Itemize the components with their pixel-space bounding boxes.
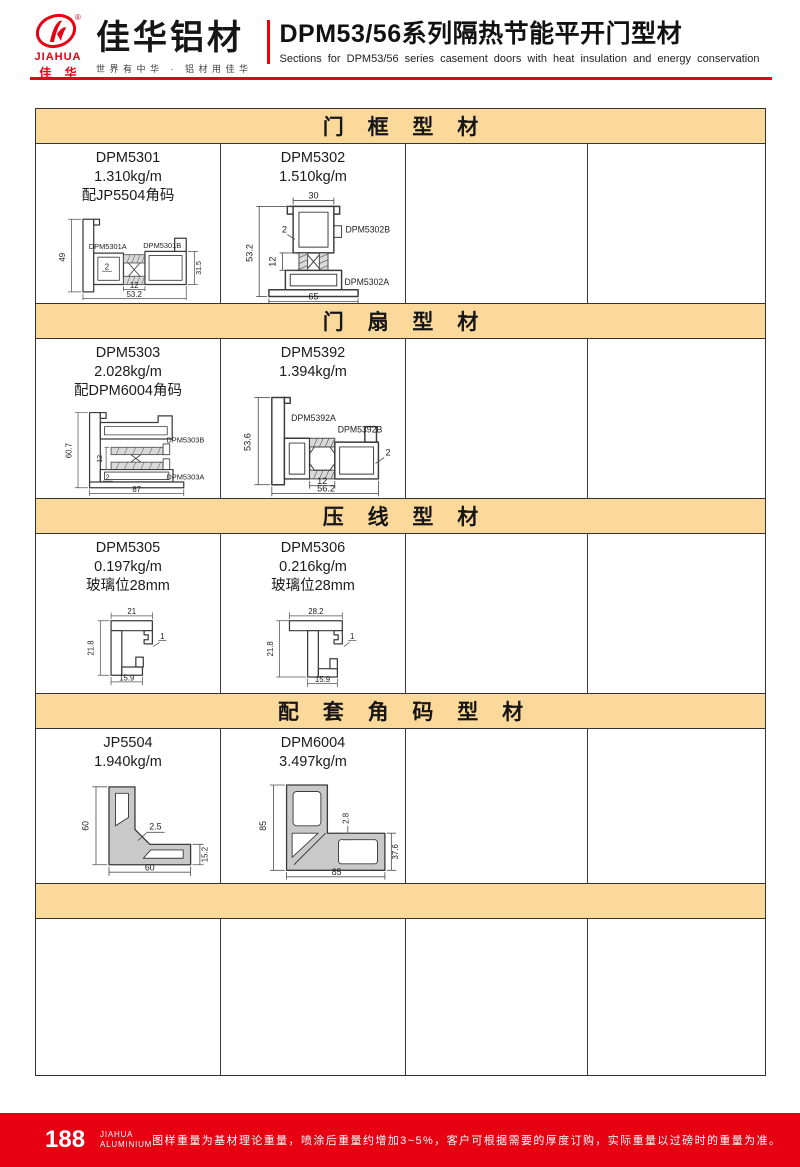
dim-height: 21.8 <box>87 639 96 655</box>
profile-weight: 3.497kg/m <box>279 753 347 772</box>
part-label: DPM5301B <box>143 241 181 250</box>
dim-wall: 1 <box>350 631 354 640</box>
profile-weight: 0.216kg/m <box>271 558 355 577</box>
dim-width: 60 <box>145 862 155 872</box>
header-rule <box>30 77 772 80</box>
profile-code: DPM5306 <box>271 539 355 558</box>
section-door-leaf: 门 扇 型 材 DPM5303 2.028kg/m 配DPM6004角码 <box>36 303 765 498</box>
section-glazing-bead: 压 线 型 材 DPM5305 0.197kg/m 玻璃位28mm <box>36 498 765 693</box>
dpm5306-drawing: 28.2 21.8 1 15.9 <box>221 596 405 693</box>
dim-break: 12 <box>97 454 104 462</box>
profile-cell-dpm5303: DPM5303 2.028kg/m 配DPM6004角码 <box>36 339 221 498</box>
profile-row: DPM5303 2.028kg/m 配DPM6004角码 <box>36 339 765 498</box>
profile-code: DPM5302 <box>279 149 347 168</box>
dim-top: 30 <box>308 190 318 200</box>
dim-height: 21.8 <box>266 640 275 656</box>
dim-wall: 2 <box>386 447 391 457</box>
dim-height: 60 <box>81 820 91 830</box>
page-subtitle: Sections for DPM53/56 series casement do… <box>280 53 760 65</box>
part-label: DPM5392B <box>338 424 383 434</box>
empty-cell <box>406 144 588 303</box>
registered-mark: ® <box>75 13 81 22</box>
section-title: 配 套 角 码 型 材 <box>269 696 532 726</box>
dim-width: 53.2 <box>127 289 142 298</box>
profile-weight: 1.394kg/m <box>279 363 347 382</box>
profile-cell-jp5504: JP5504 1.940kg/m 60 60 15.2 <box>36 729 221 883</box>
page-title: DPM53/56系列隔热节能平开门型材 <box>280 21 760 49</box>
profile-note: 配DPM6004角码 <box>74 382 182 401</box>
company-block: 佳华铝材 世界有中华 · 铝材用佳华 <box>96 12 253 75</box>
section-band: 配 套 角 码 型 材 <box>36 693 765 729</box>
dim-width: 85 <box>332 867 342 877</box>
jp5504-drawing: 60 60 15.2 2.5 <box>36 772 220 883</box>
profile-cell-dpm5301: DPM5301 1.310kg/m 配JP5504角码 <box>36 144 221 303</box>
jiahua-logo-icon: ® <box>33 12 83 50</box>
page-header: ® JIAHUA 佳 华 佳华铝材 世界有中华 · 铝材用佳华 DPM53/56… <box>30 12 772 74</box>
catalog-page: ® JIAHUA 佳 华 佳华铝材 世界有中华 · 铝材用佳华 DPM53/56… <box>0 0 800 1167</box>
dim-wall: 2.5 <box>149 821 161 831</box>
empty-cell <box>406 339 588 498</box>
empty-cell <box>406 729 588 883</box>
dim-width: 65 <box>308 291 318 301</box>
dpm5303-drawing: 60.7 12 2 87 DPM5303B DPM5303A <box>36 401 220 498</box>
dim-top: 21 <box>127 607 136 616</box>
profile-weight: 1.510kg/m <box>279 168 347 187</box>
section-corner-connector: 配 套 角 码 型 材 JP5504 1.940kg/m 60 60 <box>36 693 765 883</box>
profile-note: 玻璃位28mm <box>86 577 170 596</box>
dim-height: 49 <box>58 252 67 261</box>
profile-table: 门 框 型 材 DPM5301 1.310kg/m 配JP5504角码 <box>35 108 766 1076</box>
empty-cell <box>588 919 765 1075</box>
empty-cell <box>588 339 765 498</box>
profile-cell-dpm6004: DPM6004 3.497kg/m 85 85 37 <box>221 729 406 883</box>
empty-cell <box>588 144 765 303</box>
page-footer: 188 JIAHUA ALUMINIUM 图样重量为基材理论重量，喷涂后重量约增… <box>0 1113 800 1167</box>
dpm5301-drawing: 49 31.5 12 53.2 2 DPM5301A DPM5301B <box>36 206 220 303</box>
profile-row: DPM5301 1.310kg/m 配JP5504角码 <box>36 144 765 303</box>
empty-cell <box>406 534 588 693</box>
section-band: 门 扇 型 材 <box>36 303 765 339</box>
dim-break: 12 <box>130 280 139 289</box>
header-divider <box>267 20 270 64</box>
profile-code: DPM5305 <box>86 539 170 558</box>
dim-height: 60.7 <box>64 442 73 457</box>
dim-top: 28.2 <box>308 607 323 616</box>
profile-code: DPM5303 <box>74 344 182 363</box>
profile-weight: 0.197kg/m <box>86 558 170 577</box>
dim-width: 56.2 <box>317 483 335 493</box>
dim-wall: 1 <box>160 631 164 640</box>
section-title: 门 框 型 材 <box>314 111 488 141</box>
empty-cell <box>406 919 588 1075</box>
profile-code: DPM5392 <box>279 344 347 363</box>
section-band <box>36 883 765 919</box>
dim-height: 53.6 <box>242 433 252 451</box>
section-empty <box>36 883 765 1075</box>
dpm6004-drawing: 85 85 37.6 2.8 <box>221 772 405 883</box>
dim-right-height: 31.5 <box>196 261 203 275</box>
empty-cell <box>588 534 765 693</box>
section-title: 门 扇 型 材 <box>314 306 488 336</box>
dim-break: 12 <box>268 256 278 266</box>
dpm5302-drawing: 30 53.2 2 12 65 DPM5302B DPM5302A <box>221 187 405 303</box>
page-number: 188 <box>45 1128 85 1152</box>
dim-right-height: 37.6 <box>391 843 400 859</box>
footer-brand-line1: JIAHUA <box>100 1130 152 1140</box>
profile-row: DPM5305 0.197kg/m 玻璃位28mm 21 21.8 <box>36 534 765 693</box>
part-label: DPM5302A <box>345 277 390 287</box>
dim-wall: 2 <box>282 224 287 234</box>
profile-weight: 2.028kg/m <box>74 363 182 382</box>
section-title: 压 线 型 材 <box>314 501 488 531</box>
section-band: 压 线 型 材 <box>36 498 765 534</box>
dim-width: 87 <box>132 484 141 493</box>
profile-code: DPM6004 <box>279 734 347 753</box>
disclaimer-text: 图样重量为基材理论重量，喷涂后重量约增加3~5%，客户可根据需要的厚度订购，实际… <box>152 1132 781 1148</box>
profile-row <box>36 919 765 1075</box>
dim-height: 53.2 <box>244 244 254 262</box>
dim-width: 15.9 <box>119 673 134 682</box>
profile-note: 配JP5504角码 <box>82 187 175 206</box>
dpm5305-drawing: 21 21.8 1 15.9 <box>36 596 220 693</box>
profile-note: 玻璃位28mm <box>271 577 355 596</box>
profile-cell-dpm5306: DPM5306 0.216kg/m 玻璃位28mm 28.2 21.8 <box>221 534 406 693</box>
part-label: DPM5302B <box>345 224 390 234</box>
profile-cell-dpm5392: DPM5392 1.394kg/m <box>221 339 406 498</box>
profile-cell-dpm5302: DPM5302 1.510kg/m <box>221 144 406 303</box>
dpm5392-drawing: 53.6 12 56.2 2 DPM5392A DPM5392B <box>221 382 405 498</box>
part-label: DPM5392A <box>291 412 336 422</box>
brand-name-en: JIAHUA <box>35 51 82 63</box>
dim-height: 85 <box>258 820 268 830</box>
dim-right-height: 15.2 <box>200 847 209 862</box>
brand-logo: ® JIAHUA 佳 华 <box>30 12 86 81</box>
profile-weight: 1.310kg/m <box>82 168 175 187</box>
footer-brand-line2: ALUMINIUM <box>100 1140 152 1150</box>
part-label: DPM5303B <box>166 435 204 444</box>
profile-code: JP5504 <box>94 734 162 753</box>
title-block: DPM53/56系列隔热节能平开门型材 Sections for DPM53/5… <box>280 12 760 65</box>
dim-width: 15.9 <box>315 674 330 683</box>
dim-wall: 2 <box>106 474 110 481</box>
dim-wall: 2 <box>105 262 109 271</box>
part-label: DPM5301A <box>89 241 127 250</box>
dim-wall: 2.8 <box>342 812 351 824</box>
profile-cell-dpm5305: DPM5305 0.197kg/m 玻璃位28mm 21 21.8 <box>36 534 221 693</box>
part-label: DPM5303A <box>166 472 204 481</box>
footer-brand: JIAHUA ALUMINIUM <box>100 1130 152 1150</box>
empty-cell <box>588 729 765 883</box>
section-band: 门 框 型 材 <box>36 109 765 144</box>
company-tagline: 世界有中华 · 铝材用佳华 <box>96 62 253 75</box>
section-door-frame: 门 框 型 材 DPM5301 1.310kg/m 配JP5504角码 <box>36 109 765 303</box>
company-name: 佳华铝材 <box>96 21 253 55</box>
empty-cell <box>221 919 406 1075</box>
empty-cell <box>36 919 221 1075</box>
profile-weight: 1.940kg/m <box>94 753 162 772</box>
profile-row: JP5504 1.940kg/m 60 60 15.2 <box>36 729 765 883</box>
profile-code: DPM5301 <box>82 149 175 168</box>
